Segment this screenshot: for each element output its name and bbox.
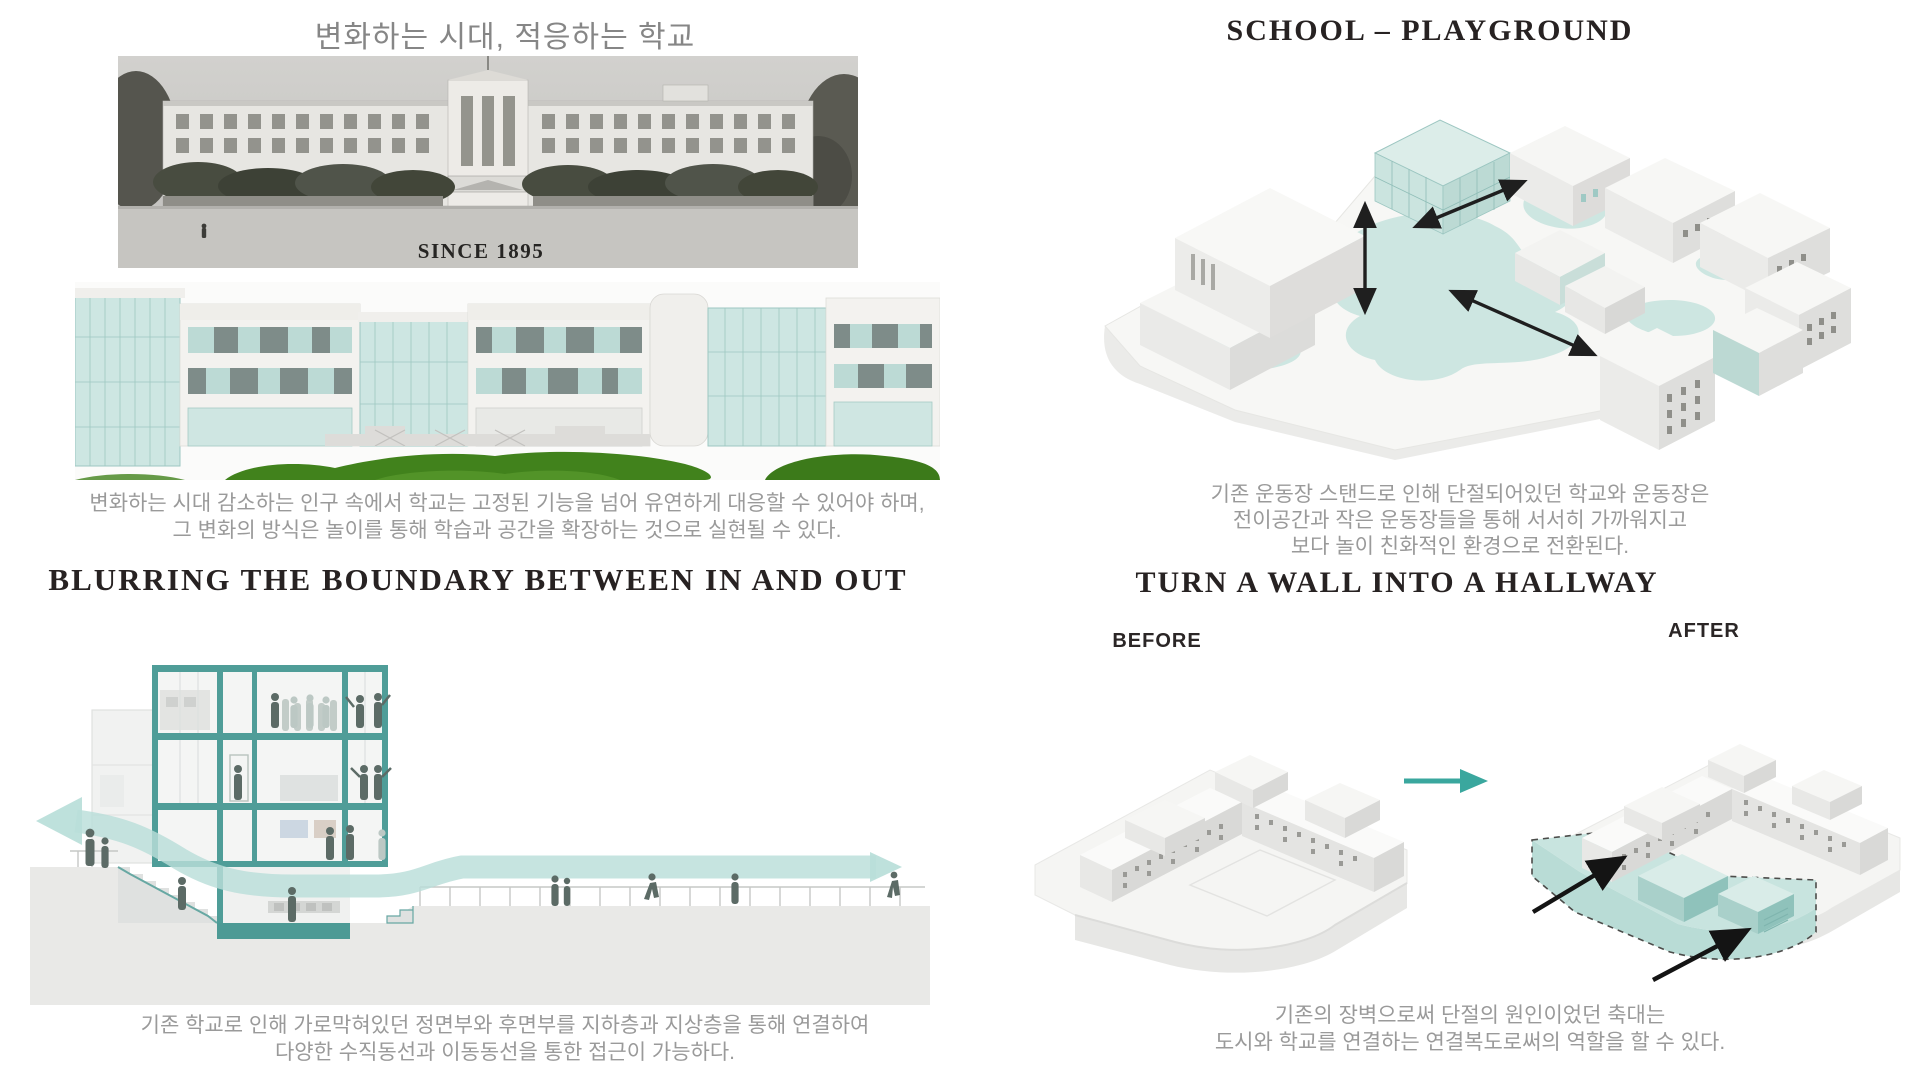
section-right-steps	[387, 906, 413, 923]
render-right-cluster	[650, 294, 940, 446]
before-after-arrow-icon	[1400, 765, 1492, 797]
before-label: BEFORE	[1097, 630, 1217, 653]
panel-adapt-caption: 변화하는 시대 감소하는 인구 속에서 학교는 고정된 기능을 넘어 유연하게 …	[57, 490, 957, 544]
render-glass-left	[75, 288, 185, 466]
section-diagram	[30, 615, 930, 1005]
panel-playground-caption: 기존 운동장 스탠드로 인해 단절되어있던 학교와 운동장은 전이공간과 작은 …	[1110, 482, 1810, 560]
presentation-board: 변화하는 시대, 적응하는 학교	[0, 0, 1920, 1080]
panel-playground-title: SCHOOL – PLAYGROUND	[1040, 14, 1820, 48]
panel-adapt-title: 변화하는 시대, 적응하는 학교	[60, 12, 950, 56]
render-glass-center	[358, 312, 470, 446]
photo-figure	[202, 224, 207, 238]
after-diagram	[1520, 680, 1910, 1000]
panel-blurring-caption: 기존 학교로 인해 가로막혀있던 정면부와 후면부를 지하층과 지상층을 통해 …	[55, 1012, 955, 1066]
playground-axon-diagram	[1045, 58, 1880, 463]
render-slab-a	[180, 304, 360, 446]
render-slab-b	[468, 304, 650, 446]
flow-arrow-right-icon	[870, 852, 902, 882]
new-school-render	[75, 282, 940, 480]
panel-wall-caption: 기존의 장벽으로써 단절의 원인이었던 축대는 도시와 학교를 연결하는 연결복…	[1120, 1002, 1820, 1056]
photo-since-label: SINCE 1895	[418, 239, 544, 263]
panel-wall-title: TURN A WALL INTO A HALLWAY	[1007, 566, 1787, 600]
panel-blurring-title: BLURRING THE BOUNDARY BETWEEN IN AND OUT	[38, 562, 918, 598]
old-school-photo: SINCE 1895	[118, 56, 858, 268]
section-basement-slab	[217, 923, 350, 939]
before-diagram	[1005, 680, 1425, 980]
flow-arrow-left-icon	[36, 797, 82, 845]
after-label: AFTER	[1644, 620, 1764, 643]
